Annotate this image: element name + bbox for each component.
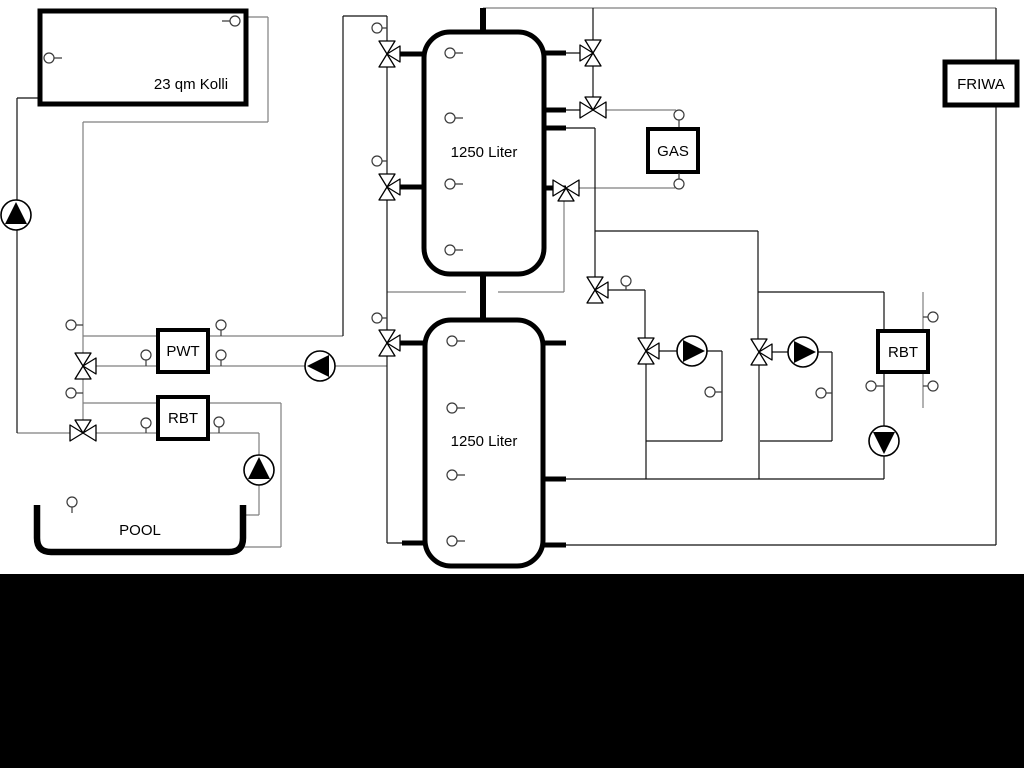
- bottom-bar: [0, 574, 1024, 768]
- tank-top-sensor4-icon: [445, 245, 455, 255]
- heating-supply-sensor-icon: [621, 276, 631, 286]
- pwt-charge-pump: [305, 351, 335, 381]
- gas-label: GAS: [657, 143, 689, 160]
- hydraulic-schematic-page: 1250 Liter 1250 Liter 23 qm Kolli PWT RB…: [0, 0, 1024, 768]
- tank-top-sensor3-icon: [445, 179, 455, 189]
- tank-bottom-sensor4-icon: [447, 536, 457, 546]
- pool-rbt-label: RBT: [168, 410, 198, 427]
- heating-circuit-1-pump: [677, 336, 707, 366]
- pool-label: POOL: [119, 522, 161, 539]
- gas-return-sensor-icon: [674, 179, 684, 189]
- pool-sensor-icon: [67, 497, 77, 507]
- heating-circuit-2-pump: [788, 337, 818, 367]
- valve3-sensor-icon: [372, 313, 382, 323]
- solar-pump: [1, 200, 31, 230]
- right-boiler-pump: [869, 426, 899, 456]
- collector-sensor-icon: [44, 53, 54, 63]
- rbt-secondary-bottom-sensor-icon: [928, 381, 938, 391]
- pwt-bottom-outlet-sensor-icon: [216, 350, 226, 360]
- tank-bottom-sensor3-icon: [447, 470, 457, 480]
- pool-pump: [244, 455, 274, 485]
- buffer-tank-top-label: 1250 Liter: [451, 144, 518, 161]
- rbt-secondary-top-sensor-icon: [928, 312, 938, 322]
- valve2-sensor-icon: [372, 156, 382, 166]
- tank-bottom-sensor2-icon: [447, 403, 457, 413]
- solar-line-sensor-icon: [66, 388, 76, 398]
- pool-boiler-rbt: RBT: [158, 397, 208, 439]
- hc1-return-sensor-icon: [705, 387, 715, 397]
- right-rbt-label: RBT: [888, 344, 918, 361]
- heat-exchanger-pwt: PWT: [158, 330, 208, 372]
- tank-bottom-sensor1-icon: [447, 336, 457, 346]
- solar-collector: 23 qm Kolli: [40, 11, 246, 104]
- rbt-inlet-sensor-icon: [141, 418, 151, 428]
- valve1-sensor-icon: [372, 23, 382, 33]
- fresh-water-station-friwa: FRIWA: [945, 62, 1017, 105]
- pwt-top-outlet-sensor-icon: [216, 320, 226, 330]
- pwt-inlet-sensor-icon: [141, 350, 151, 360]
- buffer-tank-top: 1250 Liter: [424, 32, 544, 274]
- hc2-return-sensor-icon: [816, 388, 826, 398]
- gas-boiler: GAS: [648, 129, 698, 172]
- tank-top-sensor1-icon: [445, 48, 455, 58]
- friwa-label: FRIWA: [957, 76, 1005, 93]
- buffer-tank-bottom-label: 1250 Liter: [451, 433, 518, 450]
- gas-supply-sensor-icon: [674, 110, 684, 120]
- collector-top-sensor-icon: [230, 16, 240, 26]
- pwt-label: PWT: [166, 343, 199, 360]
- solar-return-sensor-icon: [66, 320, 76, 330]
- buffer-tank-bottom: 1250 Liter: [425, 320, 543, 566]
- rbt-return-sensor-icon: [866, 381, 876, 391]
- schematic-canvas: 1250 Liter 1250 Liter 23 qm Kolli PWT RB…: [0, 0, 1024, 768]
- rbt-outlet-sensor-icon: [214, 417, 224, 427]
- tank-top-sensor2-icon: [445, 113, 455, 123]
- right-boiler-rbt: RBT: [878, 331, 928, 372]
- solar-collector-label: 23 qm Kolli: [154, 76, 228, 93]
